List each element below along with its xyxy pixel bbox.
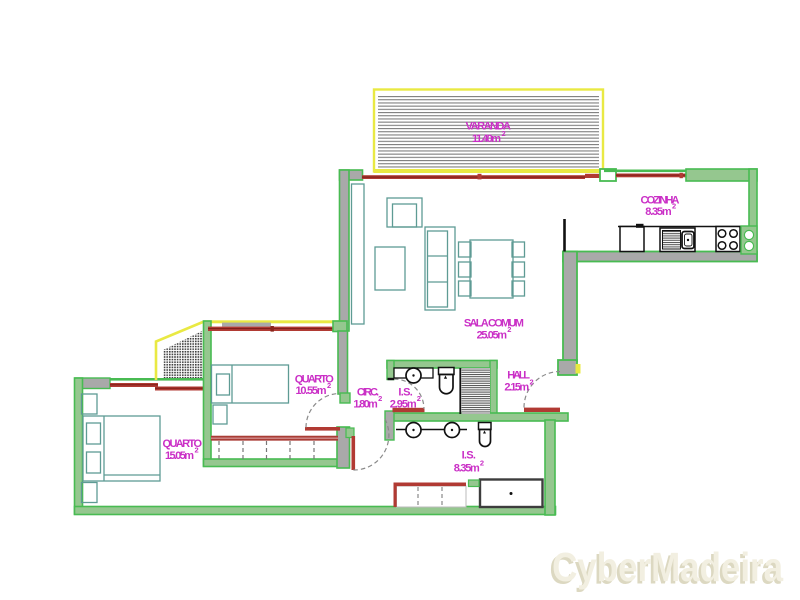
svg-text:2: 2 [672, 202, 676, 211]
svg-text:15.05m: 15.05m [165, 450, 194, 462]
svg-text:8.35m: 8.35m [645, 206, 672, 218]
svg-text:10.55m: 10.55m [296, 385, 327, 397]
svg-text:2: 2 [530, 378, 534, 387]
svg-text:8.35m: 8.35m [454, 463, 480, 475]
svg-text:2: 2 [502, 129, 506, 138]
svg-text:2: 2 [195, 446, 199, 455]
svg-text:HALL: HALL [507, 370, 530, 382]
svg-text:11.40m: 11.40m [472, 133, 501, 145]
svg-text:2: 2 [507, 325, 511, 334]
svg-text:CyberMadeira: CyberMadeira [552, 545, 784, 590]
svg-text:25.05m: 25.05m [477, 329, 508, 341]
svg-text:2: 2 [327, 381, 331, 390]
svg-text:2: 2 [417, 394, 421, 403]
svg-text:2: 2 [480, 459, 484, 468]
svg-text:I.S.: I.S. [398, 387, 412, 399]
svg-text:2: 2 [378, 394, 382, 403]
svg-text:2.95m: 2.95m [390, 399, 417, 411]
svg-text:SALA COMUM: SALA COMUM [464, 317, 524, 329]
svg-text:2.15m: 2.15m [504, 382, 529, 394]
svg-text:I.S.: I.S. [462, 450, 476, 462]
svg-text:CIRC.: CIRC. [357, 387, 379, 399]
svg-text:1.80m: 1.80m [353, 399, 378, 411]
